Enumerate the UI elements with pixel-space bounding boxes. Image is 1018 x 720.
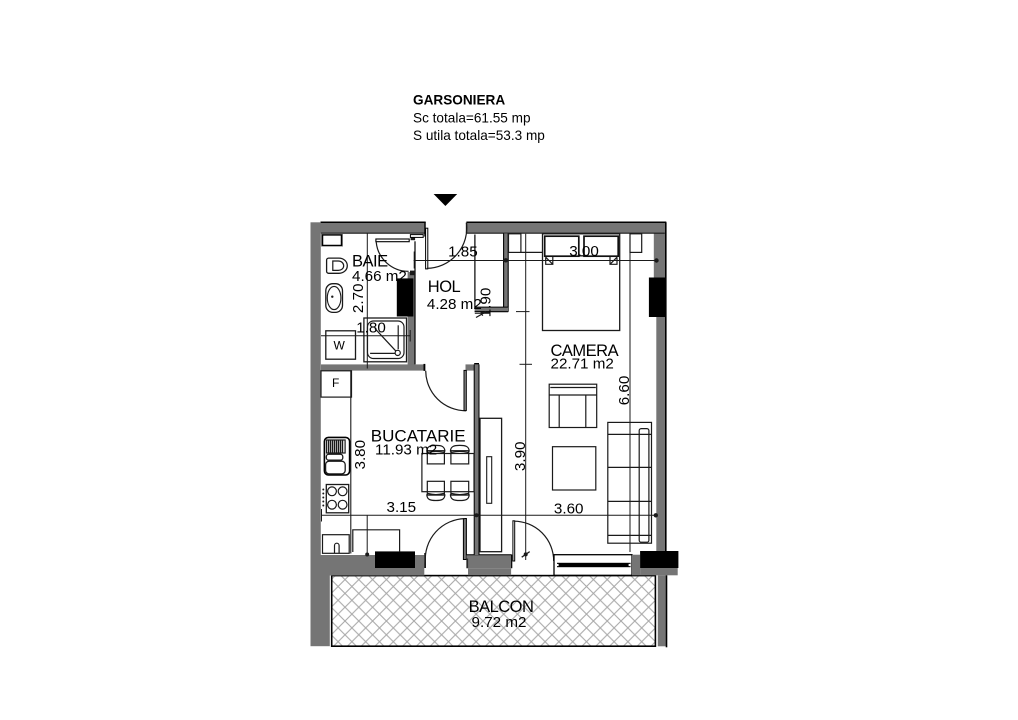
- svg-text:3.00: 3.00: [569, 243, 599, 260]
- svg-text:1.85: 1.85: [448, 244, 478, 261]
- svg-text:6.60: 6.60: [616, 376, 633, 406]
- svg-text:4.28 m2: 4.28 m2: [427, 296, 482, 313]
- svg-text:W: W: [334, 339, 346, 353]
- svg-text:11.93 m2: 11.93 m2: [375, 442, 437, 459]
- svg-text:Sc totala=61.55 mp: Sc totala=61.55 mp: [413, 111, 531, 126]
- svg-text:2.70: 2.70: [350, 284, 367, 314]
- svg-text:S utila totala=53.3 mp: S utila totala=53.3 mp: [413, 128, 545, 143]
- svg-text:3.15: 3.15: [387, 499, 417, 516]
- svg-text:1.80: 1.80: [356, 320, 386, 337]
- svg-text:22.71 m2: 22.71 m2: [551, 355, 614, 372]
- svg-text:3.80: 3.80: [352, 440, 369, 470]
- svg-text:3.60: 3.60: [554, 501, 584, 518]
- svg-text:9.72 m2: 9.72 m2: [472, 614, 527, 631]
- svg-text:GARSONIERA: GARSONIERA: [413, 93, 505, 108]
- svg-text:4.66 m2: 4.66 m2: [352, 268, 407, 285]
- svg-text:3.90: 3.90: [512, 442, 529, 472]
- svg-text:HOL: HOL: [428, 278, 461, 296]
- svg-text:F: F: [332, 376, 339, 390]
